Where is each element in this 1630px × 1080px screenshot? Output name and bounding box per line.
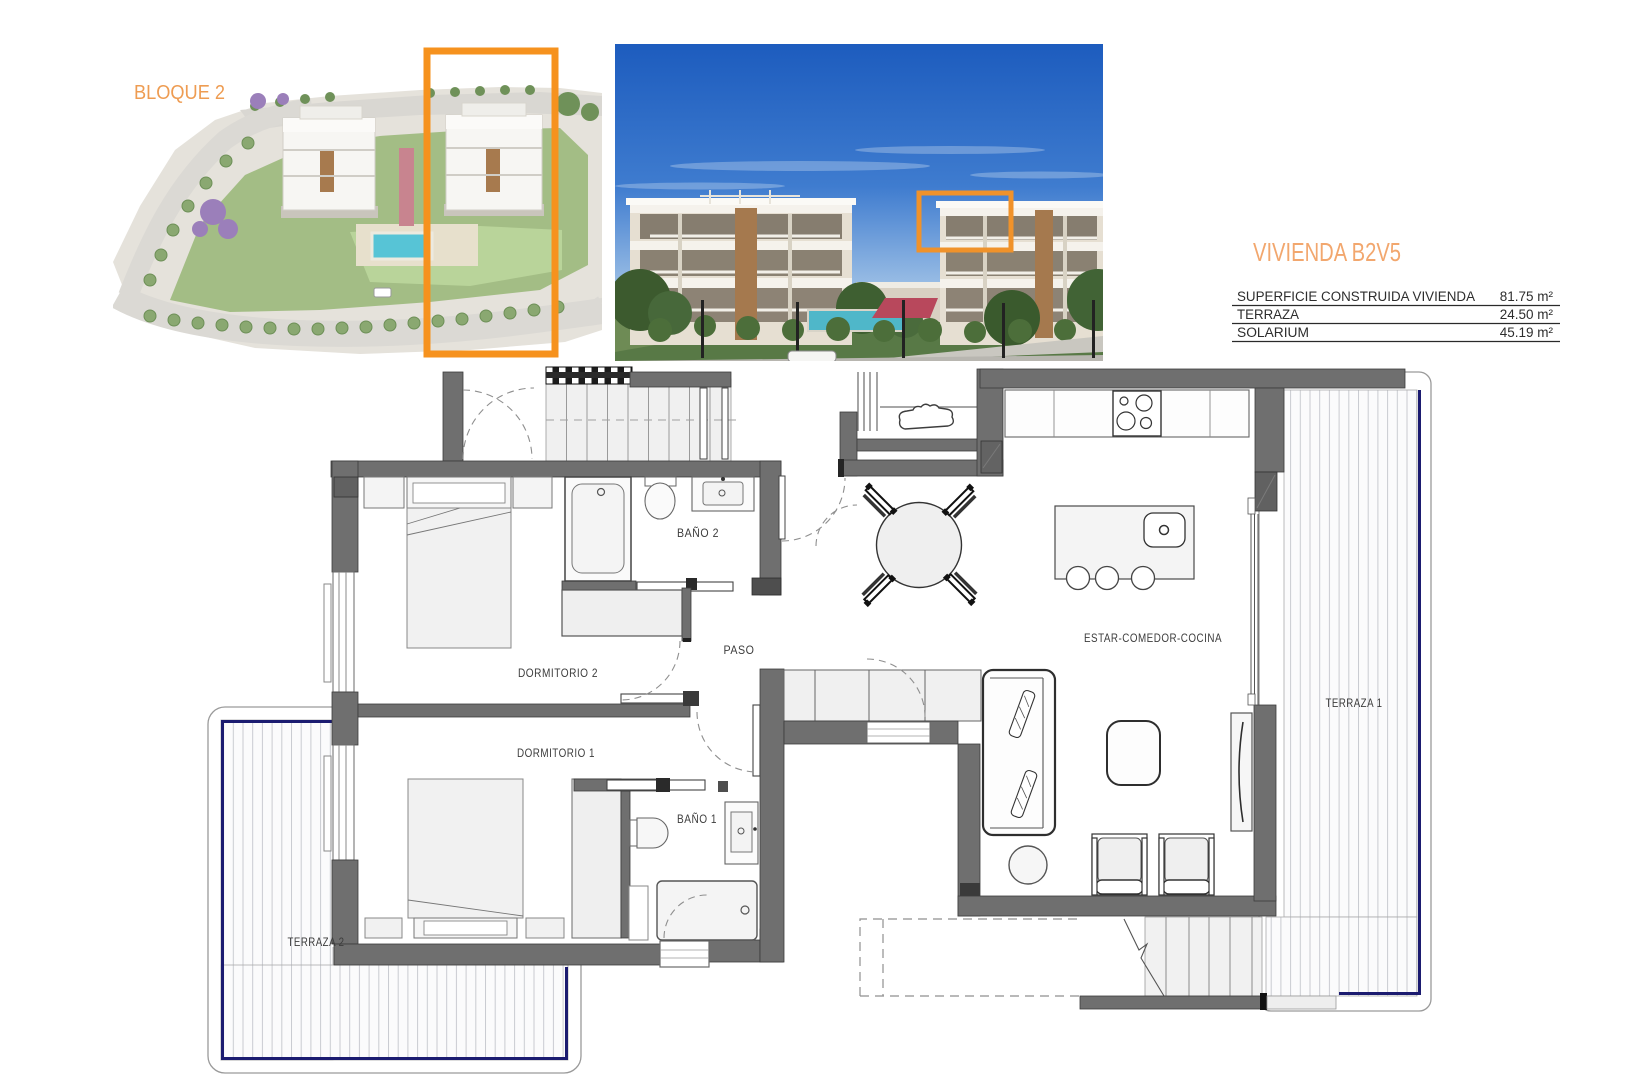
svg-text:VIVIENDA B2V5: VIVIENDA B2V5 (1253, 237, 1401, 267)
svg-text:DORMITORIO 1: DORMITORIO 1 (517, 746, 595, 760)
svg-text:BLOQUE 2: BLOQUE 2 (134, 82, 225, 104)
svg-text:BAÑO 1: BAÑO 1 (677, 812, 717, 826)
svg-text:ESTAR-COMEDOR-COCINA: ESTAR-COMEDOR-COCINA (1084, 631, 1222, 645)
svg-text:81.75 m²: 81.75 m² (1500, 289, 1554, 304)
svg-text:TERRAZA: TERRAZA (1237, 307, 1299, 322)
svg-text:SUPERFICIE CONSTRUIDA VIVIENDA: SUPERFICIE CONSTRUIDA VIVIENDA (1237, 289, 1475, 304)
svg-text:TERRAZA 1: TERRAZA 1 (1326, 696, 1383, 710)
svg-text:SOLARIUM: SOLARIUM (1237, 325, 1309, 340)
svg-text:PASO: PASO (724, 643, 755, 657)
svg-text:24.50 m²: 24.50 m² (1500, 307, 1554, 322)
svg-text:DORMITORIO 2: DORMITORIO 2 (518, 666, 598, 680)
svg-text:45.19 m²: 45.19 m² (1500, 325, 1554, 340)
svg-text:BAÑO 2: BAÑO 2 (677, 526, 719, 540)
svg-text:TERRAZA 2: TERRAZA 2 (288, 935, 345, 949)
